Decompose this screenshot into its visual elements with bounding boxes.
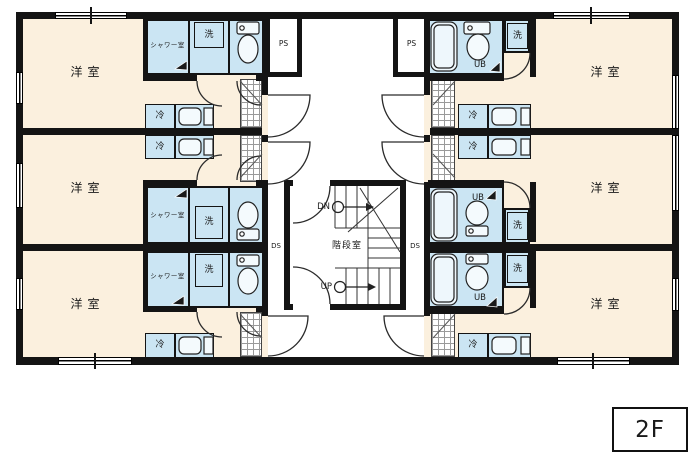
- room-label-western: 洋室: [560, 180, 650, 196]
- window: [672, 135, 679, 211]
- toilet-room: [228, 19, 264, 75]
- kitchen-counter: [175, 333, 214, 358]
- wall: [430, 128, 672, 135]
- kitchen-counter: [488, 333, 531, 358]
- wall: [430, 244, 672, 251]
- label-stairwell: 階段室: [322, 240, 372, 252]
- label-pipe-space: PS: [398, 36, 425, 52]
- floor-plan: 洋室 洋室 洋室 洋室 洋室 洋室 シャワー室 シャワー室 シャワー室 洗 洗 …: [0, 0, 695, 457]
- wall: [256, 180, 268, 186]
- label-unit-bath: UB: [462, 59, 486, 71]
- floor-indicator: 2F: [612, 407, 688, 452]
- wall: [284, 180, 290, 310]
- window: [16, 72, 23, 104]
- wall: [330, 180, 406, 186]
- wall: [330, 304, 406, 310]
- label-pipe-space: PS: [270, 36, 297, 52]
- room-label-western: 洋室: [40, 64, 130, 80]
- label-refrigerator: 冷: [458, 135, 488, 159]
- wall: [256, 306, 268, 312]
- label-refrigerator: 冷: [145, 333, 175, 358]
- window: [16, 163, 23, 208]
- window: [672, 75, 679, 129]
- genkan-tile-area: [431, 79, 455, 128]
- kitchen-counter: [488, 135, 531, 159]
- label-refrigerator: 冷: [458, 104, 488, 129]
- genkan-tile-area: [240, 79, 262, 128]
- wall: [23, 244, 262, 251]
- label-refrigerator: 冷: [145, 135, 175, 159]
- wall: [143, 180, 197, 186]
- window-mullion: [90, 7, 92, 24]
- label-laundry: 洗: [507, 255, 528, 283]
- wall: [424, 135, 430, 142]
- label-duct-space: DS: [268, 240, 284, 252]
- wall: [530, 19, 536, 77]
- wall: [428, 308, 504, 314]
- label-laundry: 洗: [195, 254, 223, 287]
- wall: [530, 251, 536, 308]
- toilet-room: [228, 186, 264, 244]
- wall: [284, 304, 293, 310]
- label-unit-bath: UB: [462, 292, 486, 304]
- window-mullion: [94, 353, 96, 369]
- room-label-shower: シャワー室: [146, 210, 189, 220]
- genkan-tile-area: [431, 312, 455, 357]
- window-mullion: [592, 353, 594, 369]
- room-label-shower: シャワー室: [146, 40, 189, 50]
- room-label-western: 洋室: [40, 296, 130, 312]
- label-stairs-up: UP: [310, 281, 332, 293]
- wall: [262, 19, 268, 95]
- wall: [530, 182, 536, 242]
- label-laundry: 洗: [195, 206, 223, 239]
- window: [16, 278, 23, 310]
- toilet-room: [228, 251, 264, 308]
- wall: [256, 75, 268, 81]
- wall: [143, 306, 197, 312]
- genkan-tile-area: [431, 135, 455, 182]
- wall: [424, 182, 430, 316]
- label-laundry: 洗: [507, 212, 528, 240]
- label-laundry: 洗: [194, 22, 224, 48]
- label-stairs-down: DN: [308, 201, 330, 213]
- wall: [284, 180, 293, 186]
- wall: [143, 19, 148, 81]
- room-label-western: 洋室: [560, 296, 650, 312]
- label-laundry: 洗: [507, 23, 528, 49]
- room-label-shower: シャワー室: [146, 271, 189, 281]
- wall: [424, 19, 430, 95]
- wall: [23, 128, 262, 135]
- wall: [428, 180, 504, 186]
- label-unit-bath: UB: [460, 192, 484, 204]
- wall: [428, 75, 504, 81]
- wall: [143, 75, 197, 81]
- kitchen-counter: [175, 135, 214, 159]
- label-refrigerator: 冷: [145, 104, 175, 129]
- genkan-tile-area: [240, 312, 262, 357]
- label-duct-space: DS: [406, 240, 424, 252]
- room-label-western: 洋室: [40, 180, 130, 196]
- window: [672, 278, 679, 311]
- wall: [262, 135, 268, 142]
- window-mullion: [590, 7, 592, 24]
- label-refrigerator: 冷: [458, 333, 488, 358]
- wall: [143, 251, 148, 312]
- room-label-western: 洋室: [560, 64, 650, 80]
- kitchen-counter: [488, 104, 531, 129]
- kitchen-counter: [175, 104, 214, 129]
- genkan-tile-area: [240, 135, 262, 182]
